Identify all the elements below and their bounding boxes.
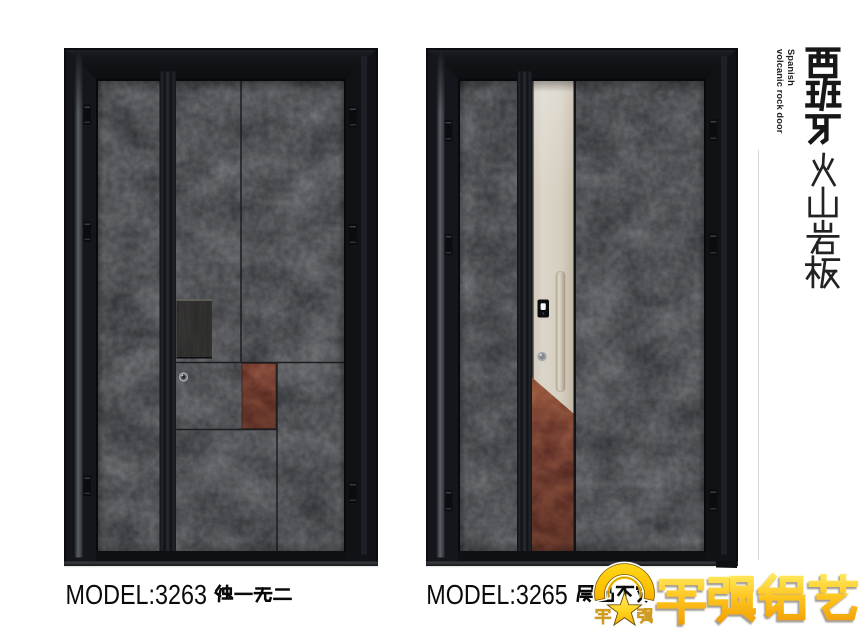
svg-text:MODEL:3263: MODEL:3263: [66, 579, 208, 610]
svg-text:MODEL:3265: MODEL:3265: [426, 579, 568, 610]
